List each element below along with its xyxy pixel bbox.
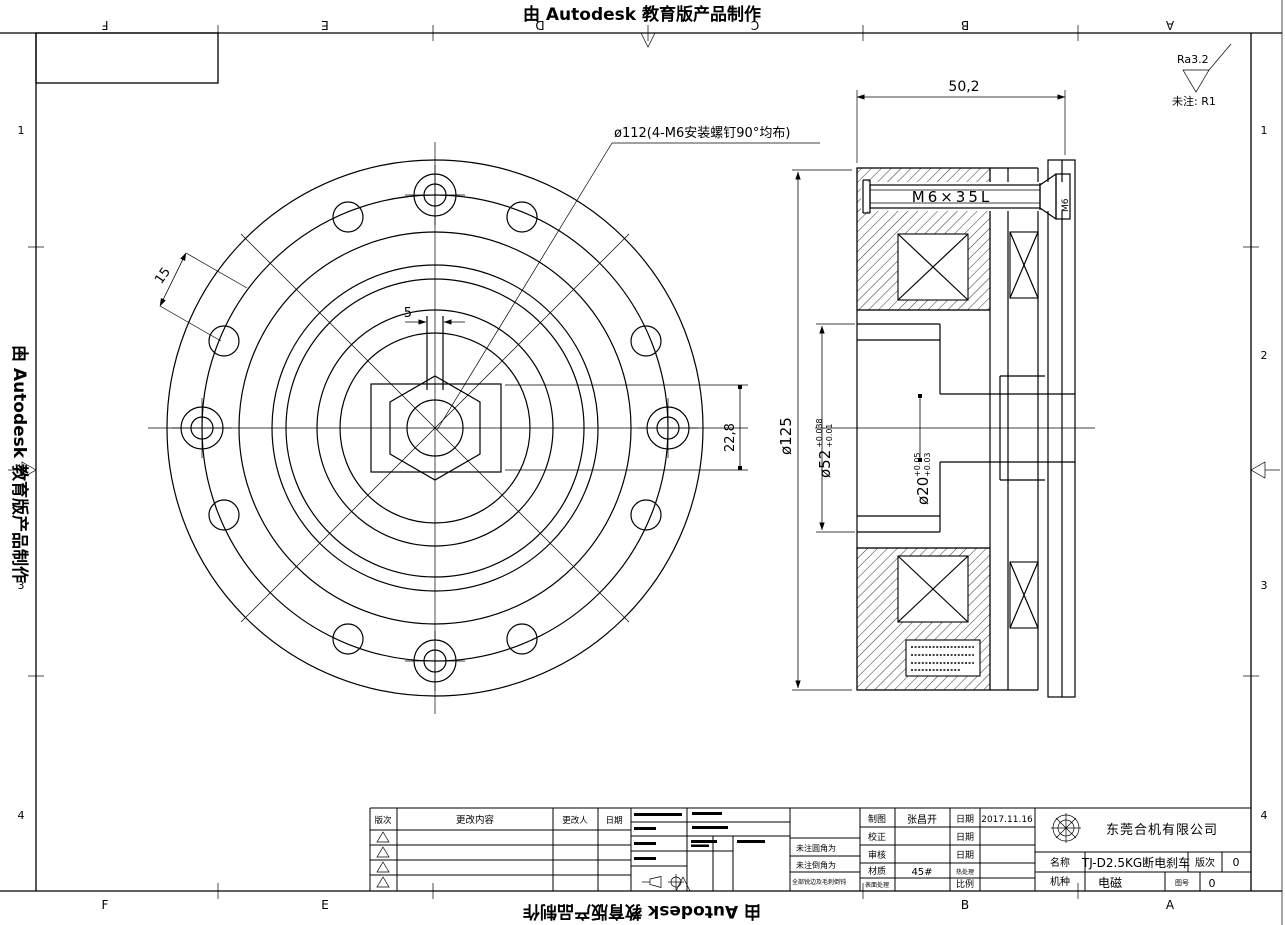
roughness-icon <box>1183 44 1231 92</box>
dim-shaft-dia: ø20 +0.05 +0.03 <box>913 396 932 505</box>
surface-finish-note: Ra3.2 未注: R1 <box>1172 44 1231 108</box>
screw-label: M6×35L <box>912 188 993 206</box>
scale-label: 比例 <box>956 878 974 890</box>
rev-label: 版次 <box>1195 856 1215 869</box>
cad-drawing: F E D C B A F E B A 1 2 3 4 1 2 3 4 由 Au… <box>0 0 1285 925</box>
type-value: 电磁 <box>1098 875 1122 890</box>
watermark-bottom: 由 Autodesk 教育版产品制作 <box>523 901 761 922</box>
bore-tol-upper: +0.038 <box>815 418 824 448</box>
label-plate <box>906 640 980 676</box>
rev-col-header: 版次 <box>374 815 392 826</box>
zone-letter: B <box>961 18 969 32</box>
title-block: 版次 更改内容 更改人 日期 <box>370 808 1251 891</box>
material-value: 45# <box>911 867 932 878</box>
centering-marks <box>8 33 1280 891</box>
dim-hub-height: 22,8 <box>505 385 748 470</box>
audit-label: 审核 <box>868 849 886 861</box>
section-view: M6×35L M6 50,2 ø125 <box>777 79 1095 697</box>
chamfer-note: 未注倒角为 <box>796 860 836 870</box>
name-value: TJ-D2.5KG断电刹车 <box>1081 855 1190 870</box>
revision-table: 版次 更改内容 更改人 日期 <box>374 814 622 887</box>
material-label: 材质 <box>868 865 886 877</box>
zone-letter: E <box>321 18 329 32</box>
watermark-top: 由 Autodesk 教育版产品制作 <box>523 4 761 25</box>
dwgno-label: 图号 <box>1175 879 1189 887</box>
zone-letter: F <box>101 18 108 32</box>
zone-letter: A <box>1165 18 1174 32</box>
check-label: 校正 <box>868 831 886 843</box>
shaft-tol-lower: +0.03 <box>923 452 932 477</box>
zone-number: 1 <box>1261 124 1268 137</box>
shaft-tol-upper: +0.05 <box>913 452 922 477</box>
top-left-block <box>36 33 218 83</box>
bolt-circle-text: ø112(4-M6安装螺钉90°均布) <box>614 126 790 141</box>
keyway-width-text: 5 <box>404 306 412 321</box>
date-label: 日期 <box>956 814 974 825</box>
zone-number: 4 <box>1261 809 1268 822</box>
bore-tol-lower: +0.01 <box>825 423 834 448</box>
watermark-left: 由 Autodesk 教育版产品制作 <box>9 345 30 583</box>
date-label: 日期 <box>956 832 974 843</box>
hub-height-text: 22,8 <box>723 423 738 452</box>
date-label: 日期 <box>956 850 974 861</box>
dwgno-value: 0 <box>1209 877 1216 890</box>
edge-notes: 未注圆角为 未注倒角为 全部锐边及毛刺倒钝 <box>792 843 846 886</box>
shaft-dia-text: ø20 <box>914 477 932 505</box>
type-label: 机种 <box>1050 875 1070 888</box>
bore-dia-text: ø52 <box>816 450 834 478</box>
draw-value: 张昌开 <box>907 814 937 826</box>
zone-number: 2 <box>1261 349 1268 362</box>
company-logo <box>1051 813 1081 843</box>
rev-value: 0 <box>1233 856 1240 869</box>
zone-letter: A <box>1166 898 1175 912</box>
dim-overall-width: 50,2 <box>857 79 1065 163</box>
drawing-sheet: F E D C B A F E B A 1 2 3 4 1 2 3 4 由 Au… <box>0 0 1285 925</box>
rev-col-header: 更改内容 <box>456 814 495 826</box>
dim-chamfer: 15 <box>152 253 247 341</box>
deburr-note: 全部锐边及毛刺倒钝 <box>792 878 846 886</box>
zone-number: 4 <box>18 809 25 822</box>
watermarks: 由 Autodesk 教育版产品制作 由 Autodesk 教育版产品制作 由 … <box>9 4 761 922</box>
overall-width-text: 50,2 <box>948 79 979 95</box>
zone-letter: F <box>102 898 109 912</box>
outer-dia-text: ø125 <box>777 417 795 455</box>
company-name: 东莞合机有限公司 <box>1106 823 1218 838</box>
draw-label: 制图 <box>868 813 886 825</box>
zone-number: 1 <box>18 124 25 137</box>
heat-label: 热处理 <box>956 868 974 876</box>
zone-letter: E <box>321 898 329 912</box>
coil-sections <box>898 232 1038 628</box>
rev-col-header: 更改人 <box>562 815 588 826</box>
fillet-note: 未注圆角为 <box>796 843 836 853</box>
screw-thread-label: M6 <box>1061 198 1071 212</box>
date-value: 2017.11.16 <box>981 815 1033 825</box>
rev-col-header: 日期 <box>605 816 622 826</box>
zone-numbers: 1 2 3 4 1 2 3 4 <box>18 124 1268 822</box>
roughness-value: Ra3.2 <box>1177 53 1209 66</box>
default-radius-note: 未注: R1 <box>1172 94 1216 108</box>
surface-label: 表面处理 <box>865 881 889 889</box>
zone-letter: B <box>961 898 969 912</box>
name-label: 名称 <box>1050 856 1070 869</box>
dim-keyway: 5 <box>404 306 465 322</box>
zone-number: 3 <box>1261 579 1268 592</box>
front-view: 5 15 ø112(4-M6安装螺钉90°均布) 22,8 <box>148 126 820 714</box>
